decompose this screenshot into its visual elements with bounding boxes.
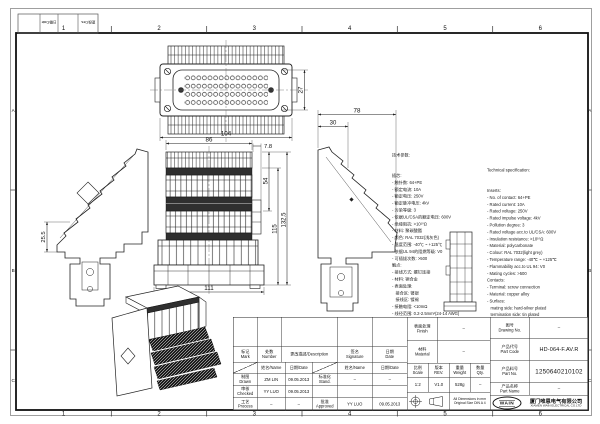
tb-empty-cell	[313, 386, 338, 398]
tb-checked-name: YY LUO	[258, 386, 286, 398]
wain-logo-text: WAIN	[499, 400, 515, 407]
tb-date-header: 日期 Date	[373, 347, 408, 363]
zone-number: 3	[253, 26, 257, 32]
dim-flange: 7.8	[264, 144, 272, 150]
tb-part-name-value: –	[530, 383, 589, 396]
zone-number: 6	[539, 26, 543, 32]
spec-en-title: Technical specification:	[487, 167, 597, 174]
dim-total-height: 132.5	[282, 212, 288, 228]
tb-number-header: 处数 Number	[258, 347, 282, 363]
tb-material-value: –	[438, 341, 491, 364]
tb-finish-label: 表面处理 Finish	[408, 318, 438, 341]
tb-part-name-label: 产品名称 Part Name	[491, 383, 530, 396]
first-angle-projection-icon	[409, 395, 422, 408]
isometric-view	[112, 286, 221, 396]
tb-date-subheader: 日期/Date	[373, 363, 408, 374]
zone-letter: A	[12, 108, 16, 113]
tb-part-code-label: 产品代号 Part Code	[491, 339, 530, 361]
tb-weight-value: 528g	[450, 378, 471, 393]
tb-weight-label: 重量 Weight	[450, 364, 471, 378]
zone-number: 4	[348, 412, 352, 418]
tb-approved-label: 批准 Approved	[313, 398, 338, 411]
tb-signature-header: 签名 Signature	[338, 347, 373, 363]
zone-letter: C	[12, 378, 16, 383]
tb-drawing-no-value: –	[530, 318, 589, 339]
tb-company-logo-cell: WAIN	[491, 396, 524, 411]
tb-stand-label: 标准化 Stand.	[313, 374, 338, 386]
dim-side-inner: 30	[330, 121, 337, 127]
zone-number: 2	[157, 26, 161, 32]
title-block: 标记 Mark 处数 Number 更改描述/Description 签名 Si…	[233, 317, 588, 410]
dim-terminal-height: 54	[264, 177, 270, 184]
zone-number: 4	[348, 26, 352, 32]
terminal-row-2	[166, 211, 252, 233]
dim-insert-height: 27	[298, 86, 305, 93]
tb-checked-date: 09.05.2013	[286, 386, 313, 398]
side-flange	[252, 200, 261, 234]
dim-base-width: 111	[204, 285, 214, 292]
tb-qty-value: –	[471, 378, 491, 393]
note-line-2: Original Size DIN A 4	[454, 402, 486, 406]
zone-number: 5	[443, 412, 447, 418]
tb-part-no-value: 1250640210102	[530, 361, 589, 383]
dim-top-width: 104	[221, 131, 232, 138]
tb-drawn-date: 09.05.2013	[286, 374, 313, 386]
tb-projection-symbols	[408, 393, 450, 411]
tb-approved-date: 09.05.2013	[373, 398, 408, 411]
zone-number: 1	[62, 26, 66, 32]
tb-finish-value: –	[438, 318, 491, 341]
spec-cn-lines: 插芯: - 触针数: 64+PE - 额定电流: 10A - 额定电压: 250…	[392, 172, 502, 324]
drawing-sheet: 1 2 3 4 5 6 1 2 3 4 5 6 A B C A B C	[0, 0, 600, 424]
tb-drawing-no-label: 图号 Drawing No.	[491, 318, 530, 339]
side-view-right: 78 30	[318, 108, 397, 312]
terminal-row-1	[166, 175, 252, 197]
tb-rev-cell	[258, 318, 282, 347]
tb-rev-value: V1.0	[429, 378, 450, 393]
tb-rev-label: 版本 REV.	[429, 364, 450, 378]
tb-date-subheader: 日期/Date	[286, 363, 313, 374]
cone-symbol-icon	[429, 397, 442, 407]
projection-symbol-icons	[408, 394, 448, 409]
tb-dimension-note: All Dimensions in mm Original Size DIN A…	[450, 393, 491, 411]
tb-diag-cell	[234, 363, 258, 374]
dim-front-width: 86	[206, 137, 213, 144]
tb-empty-cell	[373, 386, 408, 398]
zone-number: 1	[62, 412, 66, 418]
rev-strip-label: 更改/Des.	[81, 20, 96, 25]
tb-drawn-name: ZM LIN	[258, 374, 286, 386]
tb-rev-cell	[234, 318, 258, 347]
tb-rev-cell	[373, 318, 408, 347]
tb-description-header: 更改描述/Description	[282, 347, 338, 363]
tb-diag-cell	[313, 363, 338, 374]
tb-process-date: –	[286, 398, 313, 411]
zone-number: 5	[443, 26, 447, 32]
front-view: 86 7.8 54 115 132.5 111	[154, 137, 291, 297]
tb-process-label: 工艺 Process	[234, 398, 258, 411]
zone-number: 6	[539, 412, 543, 418]
zone-number: 3	[253, 412, 257, 418]
revision-strip: 日期/Date 更改/Des.	[18, 14, 98, 33]
rev-strip-label: 日期/Date	[41, 20, 56, 25]
tb-part-no-label: 产品料号 Part No.	[491, 361, 530, 383]
tb-rev-cell	[282, 318, 338, 347]
zone-number: 2	[157, 412, 161, 418]
tb-checked-label: 审核 Checked	[234, 386, 258, 398]
tb-material-label: 材料 Material	[408, 341, 438, 364]
tb-process-name: –	[258, 398, 286, 411]
company-name-en: XIAMEN WAIN ELECTRICAL CO.LTD	[531, 404, 582, 407]
dim-mid-height: 115	[273, 224, 279, 234]
spec-block-cn: 技术参数: 插芯: - 触针数: 64+PE - 额定电流: 10A - 额定电…	[392, 138, 502, 331]
side-view-left: 25.5	[41, 149, 148, 306]
tb-stand-name: –	[338, 374, 373, 386]
tb-name-subheader: 姓名/Name	[338, 363, 373, 374]
spec-cn-title: 技术参数:	[392, 152, 502, 159]
tb-company-cell: 厦门唯恩电气有限公司 XIAMEN WAIN ELECTRICAL CO.LTD	[524, 396, 589, 411]
tb-empty-cell	[338, 386, 373, 398]
tb-scale-label: 比例 Scale	[408, 364, 429, 378]
tb-scale-value: 1:2	[408, 378, 429, 393]
tb-stand-date: –	[373, 374, 408, 386]
left-profile-outline	[57, 149, 148, 306]
dim-side-depth: 78	[354, 108, 361, 115]
tb-part-code-value: HD-064-F.AV.R	[530, 339, 589, 361]
front-view-housing	[158, 240, 258, 265]
tb-name-subheader: 姓名/Name	[258, 363, 286, 374]
tb-rev-cell	[338, 318, 373, 347]
tb-drawn-label: 制图 Drawn	[234, 374, 258, 386]
tb-qty-label: 数量 Qty.	[471, 364, 491, 378]
wain-logo: WAIN	[493, 397, 522, 410]
tb-mark-header: 标记 Mark	[234, 347, 258, 363]
top-view: 104 27	[150, 40, 308, 142]
tb-approved-name: YY LUO	[338, 398, 373, 411]
dim-left-offset: 25.5	[41, 231, 47, 242]
zone-letter: B	[12, 268, 15, 273]
